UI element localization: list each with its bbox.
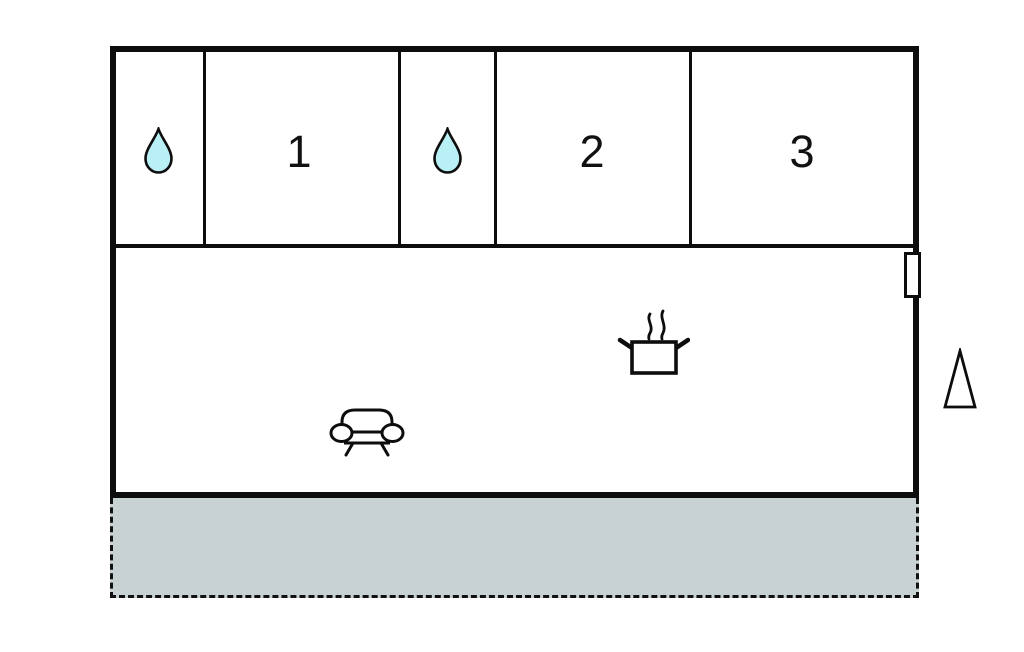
water-drop-icon bbox=[143, 127, 174, 175]
sofa-leg-left bbox=[346, 443, 353, 455]
room-3-label: 3 bbox=[752, 126, 852, 178]
triangle-shape bbox=[945, 351, 975, 407]
wall-bathroom1-room1 bbox=[203, 52, 206, 244]
water-drop-icon bbox=[432, 127, 463, 175]
wall-rooms-living bbox=[112, 244, 917, 248]
sofa-armrest-right bbox=[382, 425, 403, 442]
wall-room1-bathroom2 bbox=[398, 52, 401, 244]
pot-body bbox=[632, 342, 676, 373]
terrace-area bbox=[110, 498, 919, 598]
water-drop-shape bbox=[435, 129, 461, 173]
wall-bathroom2-room2 bbox=[494, 52, 497, 244]
door-window-marker bbox=[904, 252, 921, 298]
wall-room2-room3 bbox=[689, 52, 692, 244]
steam-line bbox=[662, 311, 664, 339]
cooking-pot-icon bbox=[614, 308, 690, 376]
steam-line bbox=[649, 314, 651, 339]
building-outline bbox=[110, 46, 919, 498]
floor-plan: 1 2 3 bbox=[0, 0, 1024, 652]
sofa-icon bbox=[329, 405, 405, 457]
room-1-label: 1 bbox=[249, 126, 349, 178]
water-drop-shape bbox=[146, 129, 172, 173]
north-triangle-marker bbox=[942, 348, 978, 410]
room-2-label: 2 bbox=[542, 126, 642, 178]
sofa-armrest-left bbox=[331, 425, 352, 442]
sofa-leg-right bbox=[381, 443, 388, 455]
